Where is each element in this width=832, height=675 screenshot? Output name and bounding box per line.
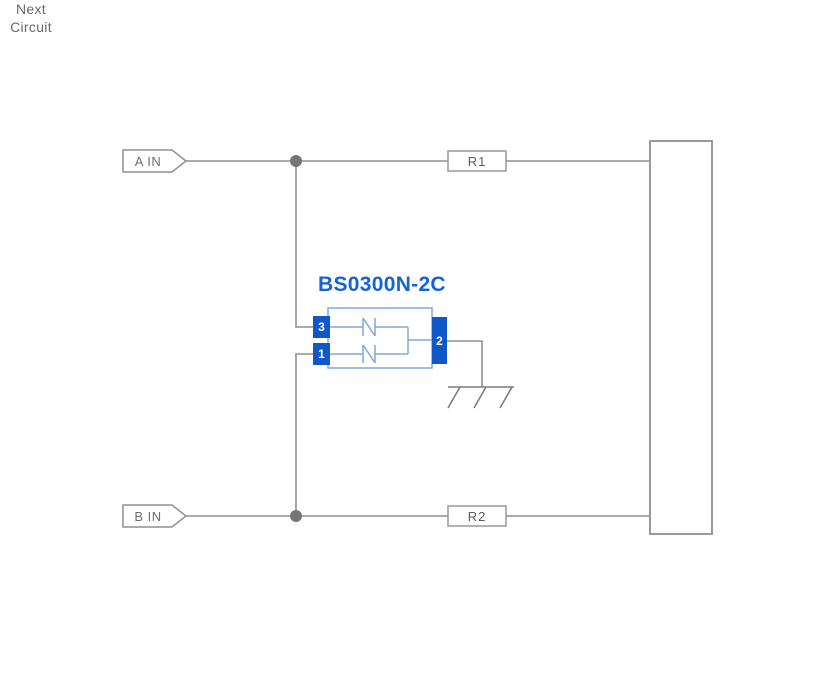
- next-circuit-box: [650, 141, 712, 534]
- pin3-label: 3: [313, 316, 330, 338]
- tvs-component: [313, 308, 447, 368]
- wire-b-branch: [296, 354, 313, 516]
- tvs-body-box: [328, 308, 432, 368]
- junction-dot-b: [290, 510, 302, 522]
- tvs-part-number: BS0300N-2C: [318, 273, 478, 297]
- junction-dot-a: [290, 155, 302, 167]
- ground-icon: [448, 387, 514, 408]
- diagram-canvas: [0, 0, 832, 675]
- pin2-label: 2: [432, 317, 447, 364]
- wire-a-branch: [296, 161, 313, 327]
- resistor-r2-label: R2: [448, 506, 506, 526]
- pin1-label: 1: [313, 343, 330, 365]
- b-in-label: B IN: [123, 505, 173, 527]
- resistor-r1-label: R1: [448, 151, 506, 171]
- a-in-label: A IN: [123, 150, 173, 172]
- circuit-diagram: A IN B IN R1 R2 BS0300N-2C 3 1 2 Next Ci…: [0, 0, 832, 675]
- wire-pin2-to-ground: [447, 341, 482, 387]
